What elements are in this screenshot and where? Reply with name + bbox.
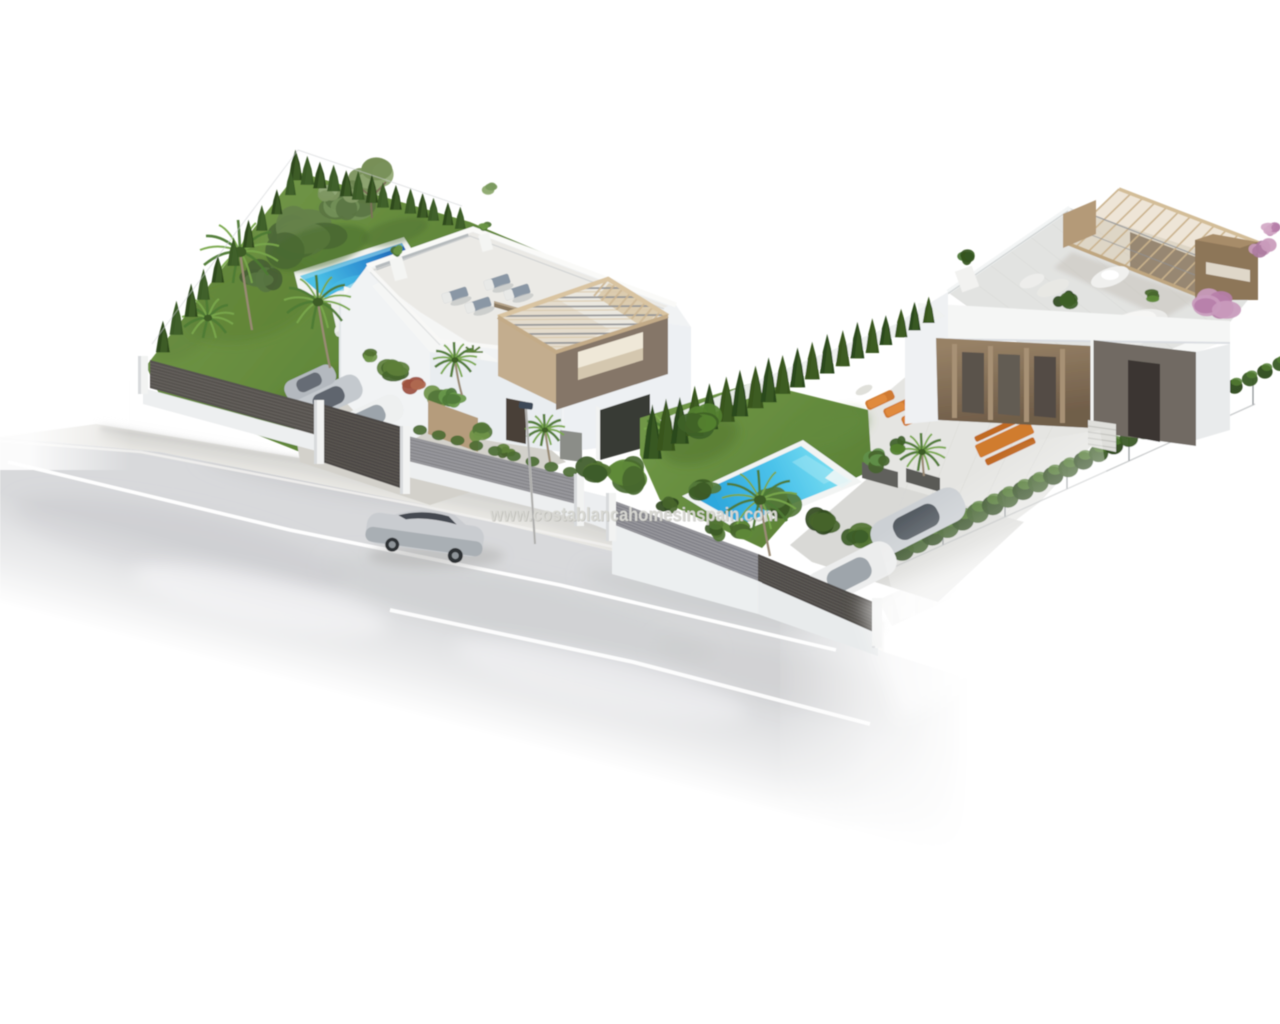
svg-text:www.costablancahomesinspain.co: www.costablancahomesinspain.com	[489, 505, 778, 526]
